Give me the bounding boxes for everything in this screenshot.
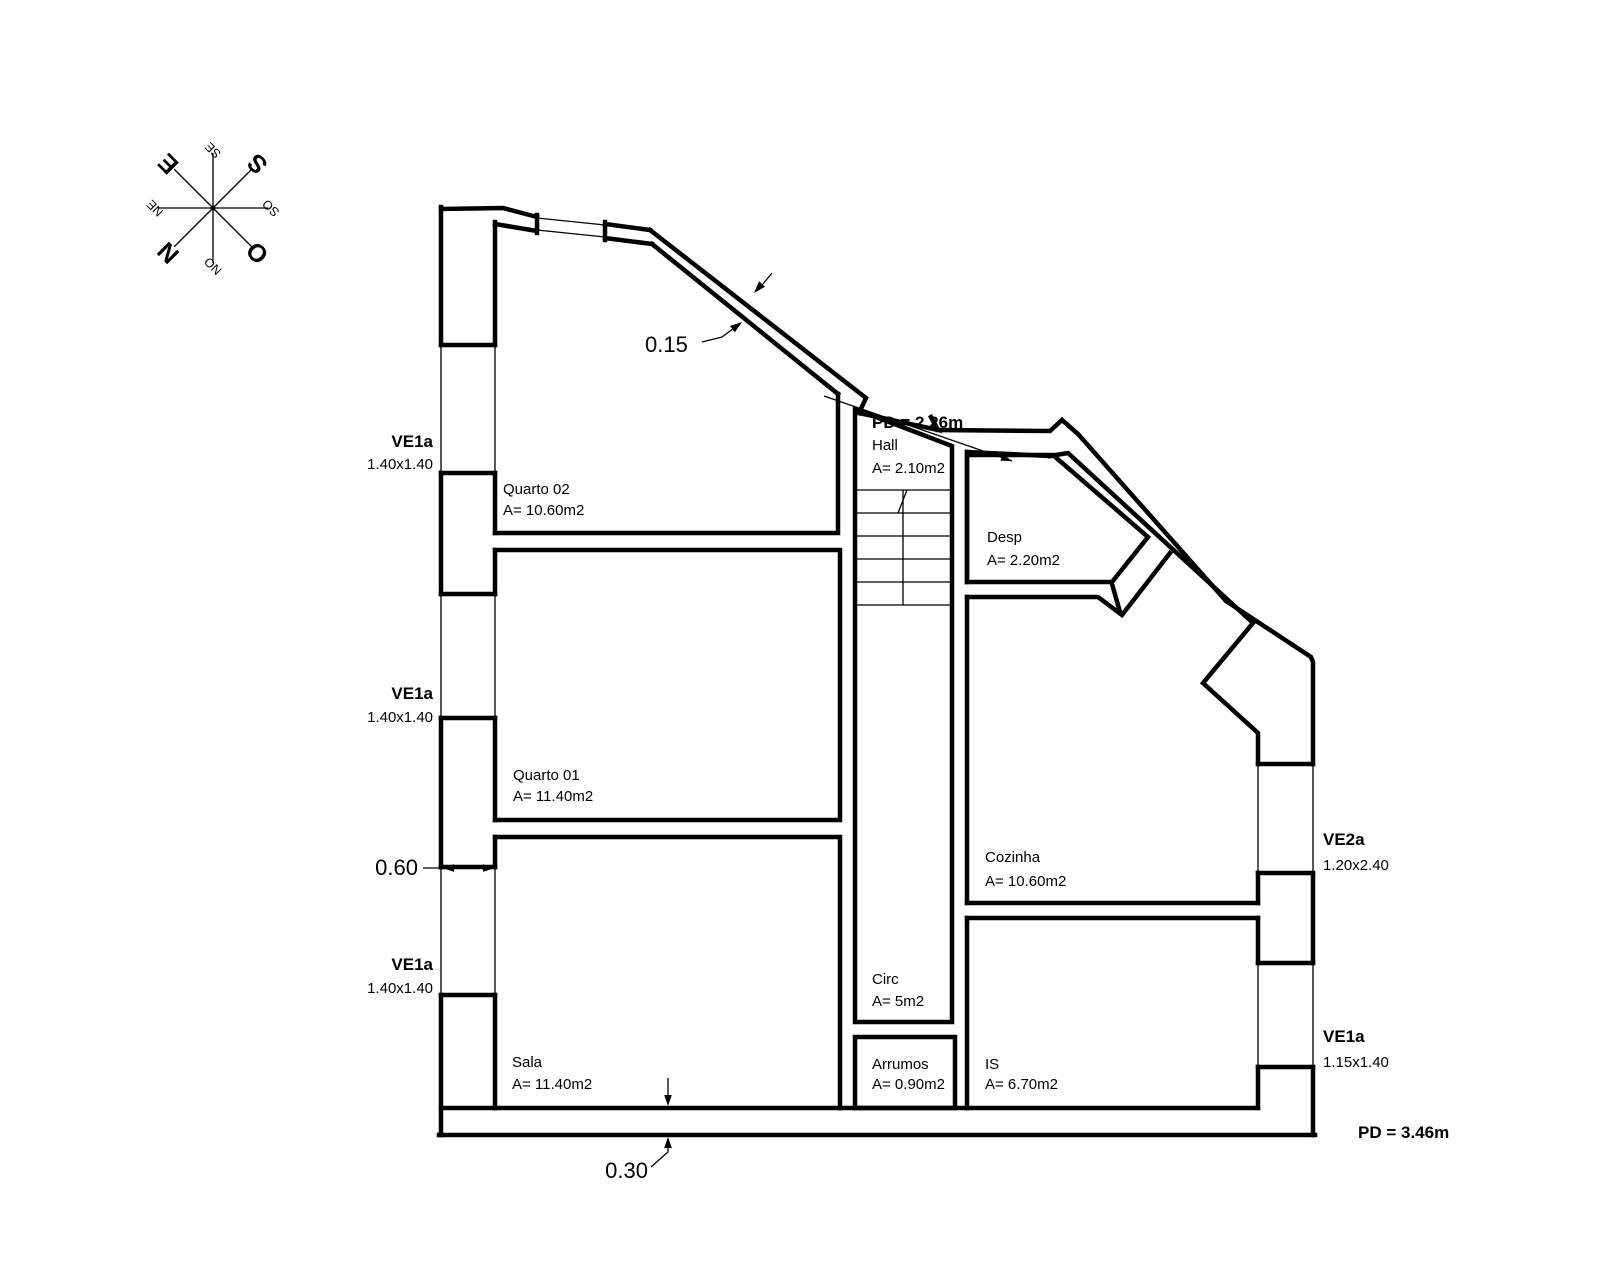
compass-southwest-label: SO (259, 196, 282, 219)
window-code-left-middle: VE1a (391, 684, 433, 703)
room-area-cozinha: A= 10.60m2 (985, 873, 1066, 890)
arrow-015-a (730, 322, 742, 332)
compass-northeast-label: NE (144, 197, 166, 219)
window-code-right-top: VE2a (1323, 830, 1365, 849)
right-wall-window-caps (1258, 764, 1313, 1067)
left-wall-windows (441, 345, 495, 995)
lines-thin (423, 218, 1313, 1167)
dim-bottom-wall: 0.30 (605, 1158, 648, 1183)
room-labels: Quarto 02 A= 10.60m2 Quarto 01 A= 11.40m… (503, 437, 1066, 1093)
room-area-quarto01: A= 11.40m2 (513, 788, 593, 805)
room-area-arrumos: A= 0.90m2 (872, 1076, 945, 1093)
arrow-030-down (664, 1095, 672, 1106)
room-label-quarto02: Quarto 02 (503, 481, 570, 498)
window-code-left-top: VE1a (391, 432, 433, 451)
diagonal-wall-se-outer (1062, 420, 1313, 1135)
right-wall-windows (1258, 764, 1313, 1067)
room-label-arrumos: Arrumos (872, 1056, 929, 1073)
room-area-is: A= 6.70m2 (985, 1076, 1058, 1093)
window-size-left-middle: 1.40x1.40 (367, 709, 433, 726)
window-size-left-top: 1.40x1.40 (367, 456, 433, 473)
room-area-hall: A= 2.10m2 (872, 460, 945, 477)
dimension-arrowheads (442, 281, 1012, 1148)
room-label-circ: Circ (872, 971, 899, 988)
bottom-wall (439, 1108, 1315, 1135)
dim-left-wall: 0.60 (375, 855, 418, 880)
floor-plan-drawing: N E S O NE SE SO NO (0, 0, 1600, 1280)
room-label-desp: Desp (987, 529, 1022, 546)
room-label-hall: Hall (872, 437, 898, 454)
ceiling-height-hall: PD = 2.26m (872, 413, 963, 432)
compass-northwest-label: NO (201, 254, 224, 277)
left-wall-window-caps (441, 345, 495, 995)
window-size-right-top: 1.20x2.40 (1323, 857, 1389, 874)
window-size-left-bottom: 1.40x1.40 (367, 980, 433, 997)
dim-030-leader (651, 1078, 668, 1167)
window-code-right-bottom: VE1a (1323, 1027, 1365, 1046)
ceiling-height-main: PD = 3.46m (1358, 1123, 1449, 1142)
dim-diagonal-wall: 0.15 (645, 332, 688, 357)
compass-southeast-label: SE (202, 139, 224, 161)
room-label-sala: Sala (512, 1054, 543, 1071)
room-area-quarto02: A= 10.60m2 (503, 502, 584, 519)
room-area-circ: A= 5m2 (872, 993, 924, 1010)
window-code-left-bottom: VE1a (391, 955, 433, 974)
room-label-cozinha: Cozinha (985, 849, 1041, 866)
top-wall-window (537, 218, 605, 237)
diagonal-wall-ne (650, 230, 866, 413)
top-wall (441, 208, 652, 244)
arrow-030-up (664, 1137, 672, 1148)
room-area-sala: A= 11.40m2 (512, 1076, 592, 1093)
window-size-right-bottom: 1.15x1.40 (1323, 1054, 1389, 1071)
room-area-desp: A= 2.20m2 (987, 552, 1060, 569)
stair-treads (855, 490, 952, 605)
room-label-is: IS (985, 1056, 999, 1073)
compass-rose: N E S O NE SE SO NO (108, 103, 319, 314)
diagonal-wall-se-inner (1050, 453, 1258, 1108)
floor-plan-page: N E S O NE SE SO NO (0, 0, 1600, 1280)
room-label-quarto01: Quarto 01 (513, 767, 580, 784)
